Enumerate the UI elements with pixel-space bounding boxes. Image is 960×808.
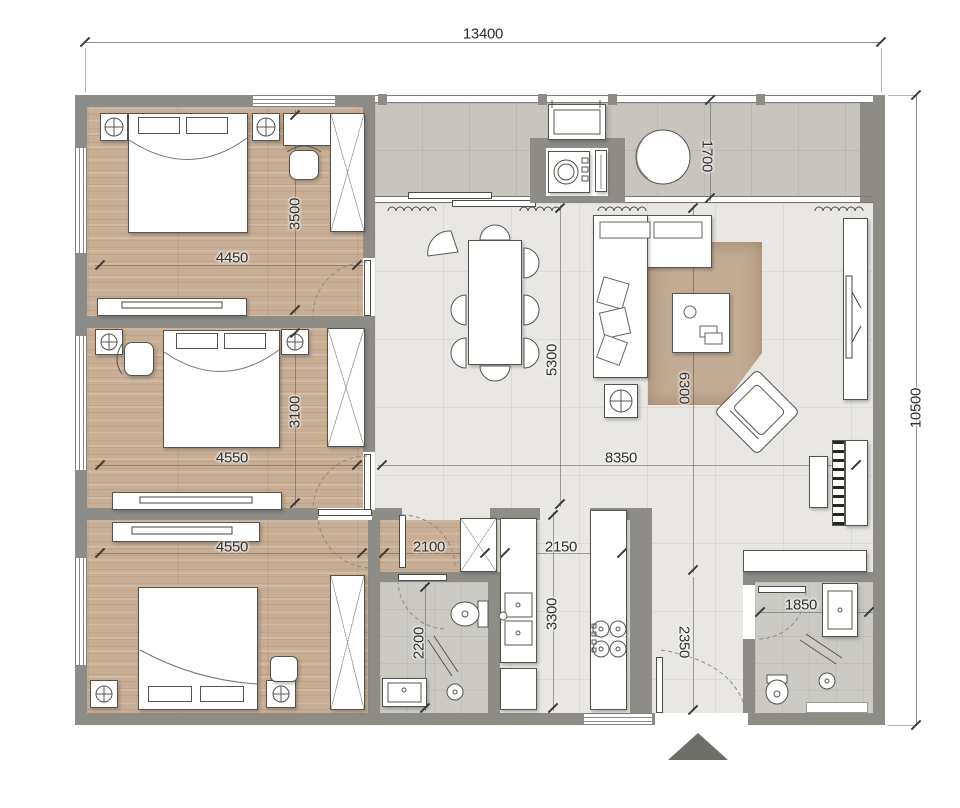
dim-label-bedroom1-depth: 3500 (287, 198, 304, 230)
sofa-cushions (597, 222, 702, 365)
shower-door (428, 636, 458, 676)
bed-blankets (129, 138, 279, 684)
dim-label-kitchen-depth: 3300 (544, 598, 561, 630)
dim-label-balcony-width: 1700 (699, 140, 716, 172)
dim-label-bathroom2-width: 1850 (785, 597, 817, 614)
detail-overlay (0, 0, 960, 808)
shower-door (800, 634, 842, 664)
dim-label-overall-width: 13400 (463, 26, 503, 43)
balcony-table (636, 130, 690, 184)
washing-machine-drum (554, 155, 601, 189)
curtains (388, 207, 863, 211)
dim-label-bedroom2-width: 4550 (216, 450, 248, 467)
dim-label-bathroom1-depth: 2200 (411, 627, 428, 659)
floor-plan: 13400 10500 4450 3500 4550 3100 4550 210… (0, 0, 960, 808)
dim-label-kitchen-width: 2150 (545, 539, 577, 556)
dim-label-bedroom3-width: 4550 (216, 539, 248, 556)
bathroom1-fixtures (388, 601, 488, 702)
door-arcs (313, 262, 806, 712)
armchair (715, 370, 800, 455)
coffee-table-items (684, 306, 722, 344)
dim-ext-top-left (85, 48, 86, 92)
dim-label-dining-depth: 5300 (544, 344, 561, 376)
stove-burners (592, 621, 626, 657)
dim-label-entry-depth: 2350 (676, 626, 693, 658)
dim-label-hallway-width: 2100 (413, 539, 445, 556)
dim-label-living-width: 8350 (605, 450, 637, 467)
dim-label-bedroom2-depth: 3100 (287, 396, 304, 428)
dim-label-living-depth: 6300 (676, 372, 693, 404)
ac-unit-inner (552, 100, 600, 134)
dim-ext-top-right (881, 48, 882, 92)
lounge-chair (428, 231, 458, 256)
dining-chairs (428, 225, 539, 381)
dim-label-bedroom1-width: 4450 (216, 250, 248, 267)
dim-label-overall-height: 10500 (908, 388, 925, 428)
kitchen-sink-detail (499, 593, 532, 645)
